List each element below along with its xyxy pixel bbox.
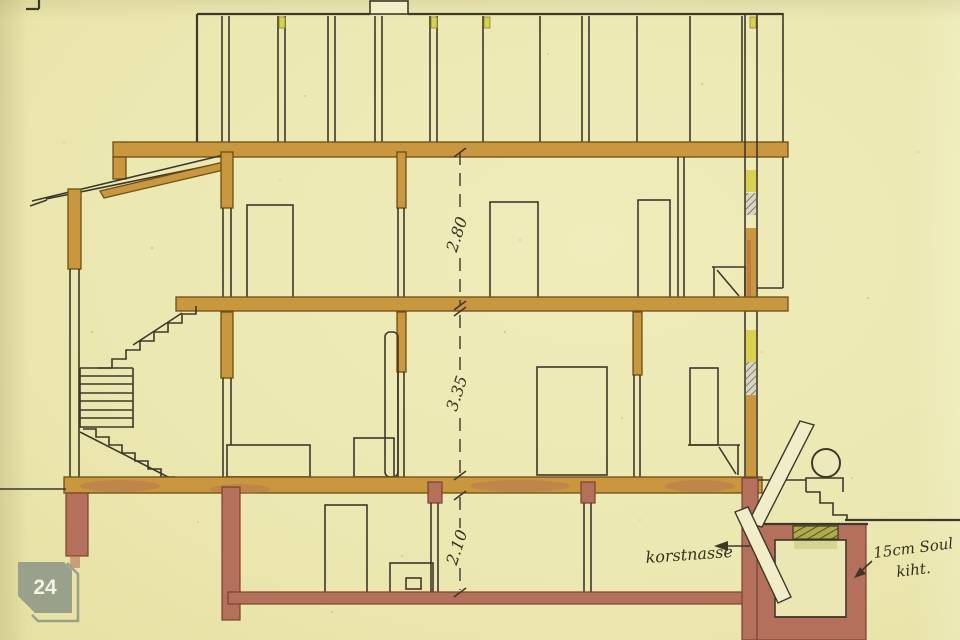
- ornament-sphere: [812, 449, 840, 477]
- door-opening: [490, 202, 538, 300]
- door-steps: [688, 445, 740, 475]
- bench: [712, 267, 748, 297]
- door-leaf: [385, 332, 398, 477]
- ground-floor-rooms: [221, 312, 740, 477]
- bench: [227, 445, 310, 477]
- attic-floor-beam: [113, 142, 788, 179]
- corner-mark: [26, 0, 39, 9]
- page-number-badge: 24: [18, 562, 78, 621]
- basement-floor: [228, 592, 758, 604]
- door-opening: [537, 367, 607, 475]
- section-linework: 2.80 3.35 2.10 korstnasse 15cm Soul kiht…: [0, 0, 960, 640]
- insulation-note-line2: kiht.: [895, 559, 931, 581]
- note-insulation: 15cm Soul kiht.: [854, 534, 954, 581]
- entrance-steps: [806, 492, 847, 521]
- architectural-section-drawing: 2.80 3.35 2.10 korstnasse 15cm Soul kiht…: [0, 0, 960, 640]
- insulation-note-line1: 15cm Soul: [872, 534, 954, 562]
- stud-markers: [279, 17, 756, 28]
- right-exterior-wall: [745, 14, 757, 480]
- upper-floor-beam: [176, 297, 788, 311]
- dimension-2-10: 2.10: [442, 491, 471, 597]
- porch-roof: [30, 153, 232, 206]
- dimension-label-basement: 2.10: [442, 527, 471, 568]
- upper-floor-rooms: [221, 152, 748, 300]
- chimney-note-label: korstnasse: [645, 542, 733, 567]
- porch-post: [68, 189, 81, 477]
- door-opening: [690, 368, 718, 445]
- chimney: [370, 1, 408, 14]
- cabinet: [354, 438, 394, 477]
- dimension-label-ground: 3.35: [442, 373, 471, 413]
- staircase: [80, 306, 196, 478]
- basement-stove: [390, 563, 433, 593]
- pit-lid: [793, 526, 838, 539]
- dimension-label-upper: 2.80: [442, 214, 471, 255]
- dimension-2-80: 2.80: [442, 148, 471, 310]
- door-opening: [247, 205, 293, 300]
- page-number-label: 24: [33, 576, 57, 599]
- door-opening: [638, 200, 670, 300]
- dimension-3-35: 3.35: [442, 307, 471, 480]
- ground-slab: [64, 477, 762, 494]
- basement-door: [325, 505, 367, 593]
- note-korstnasse: korstnasse: [645, 541, 750, 567]
